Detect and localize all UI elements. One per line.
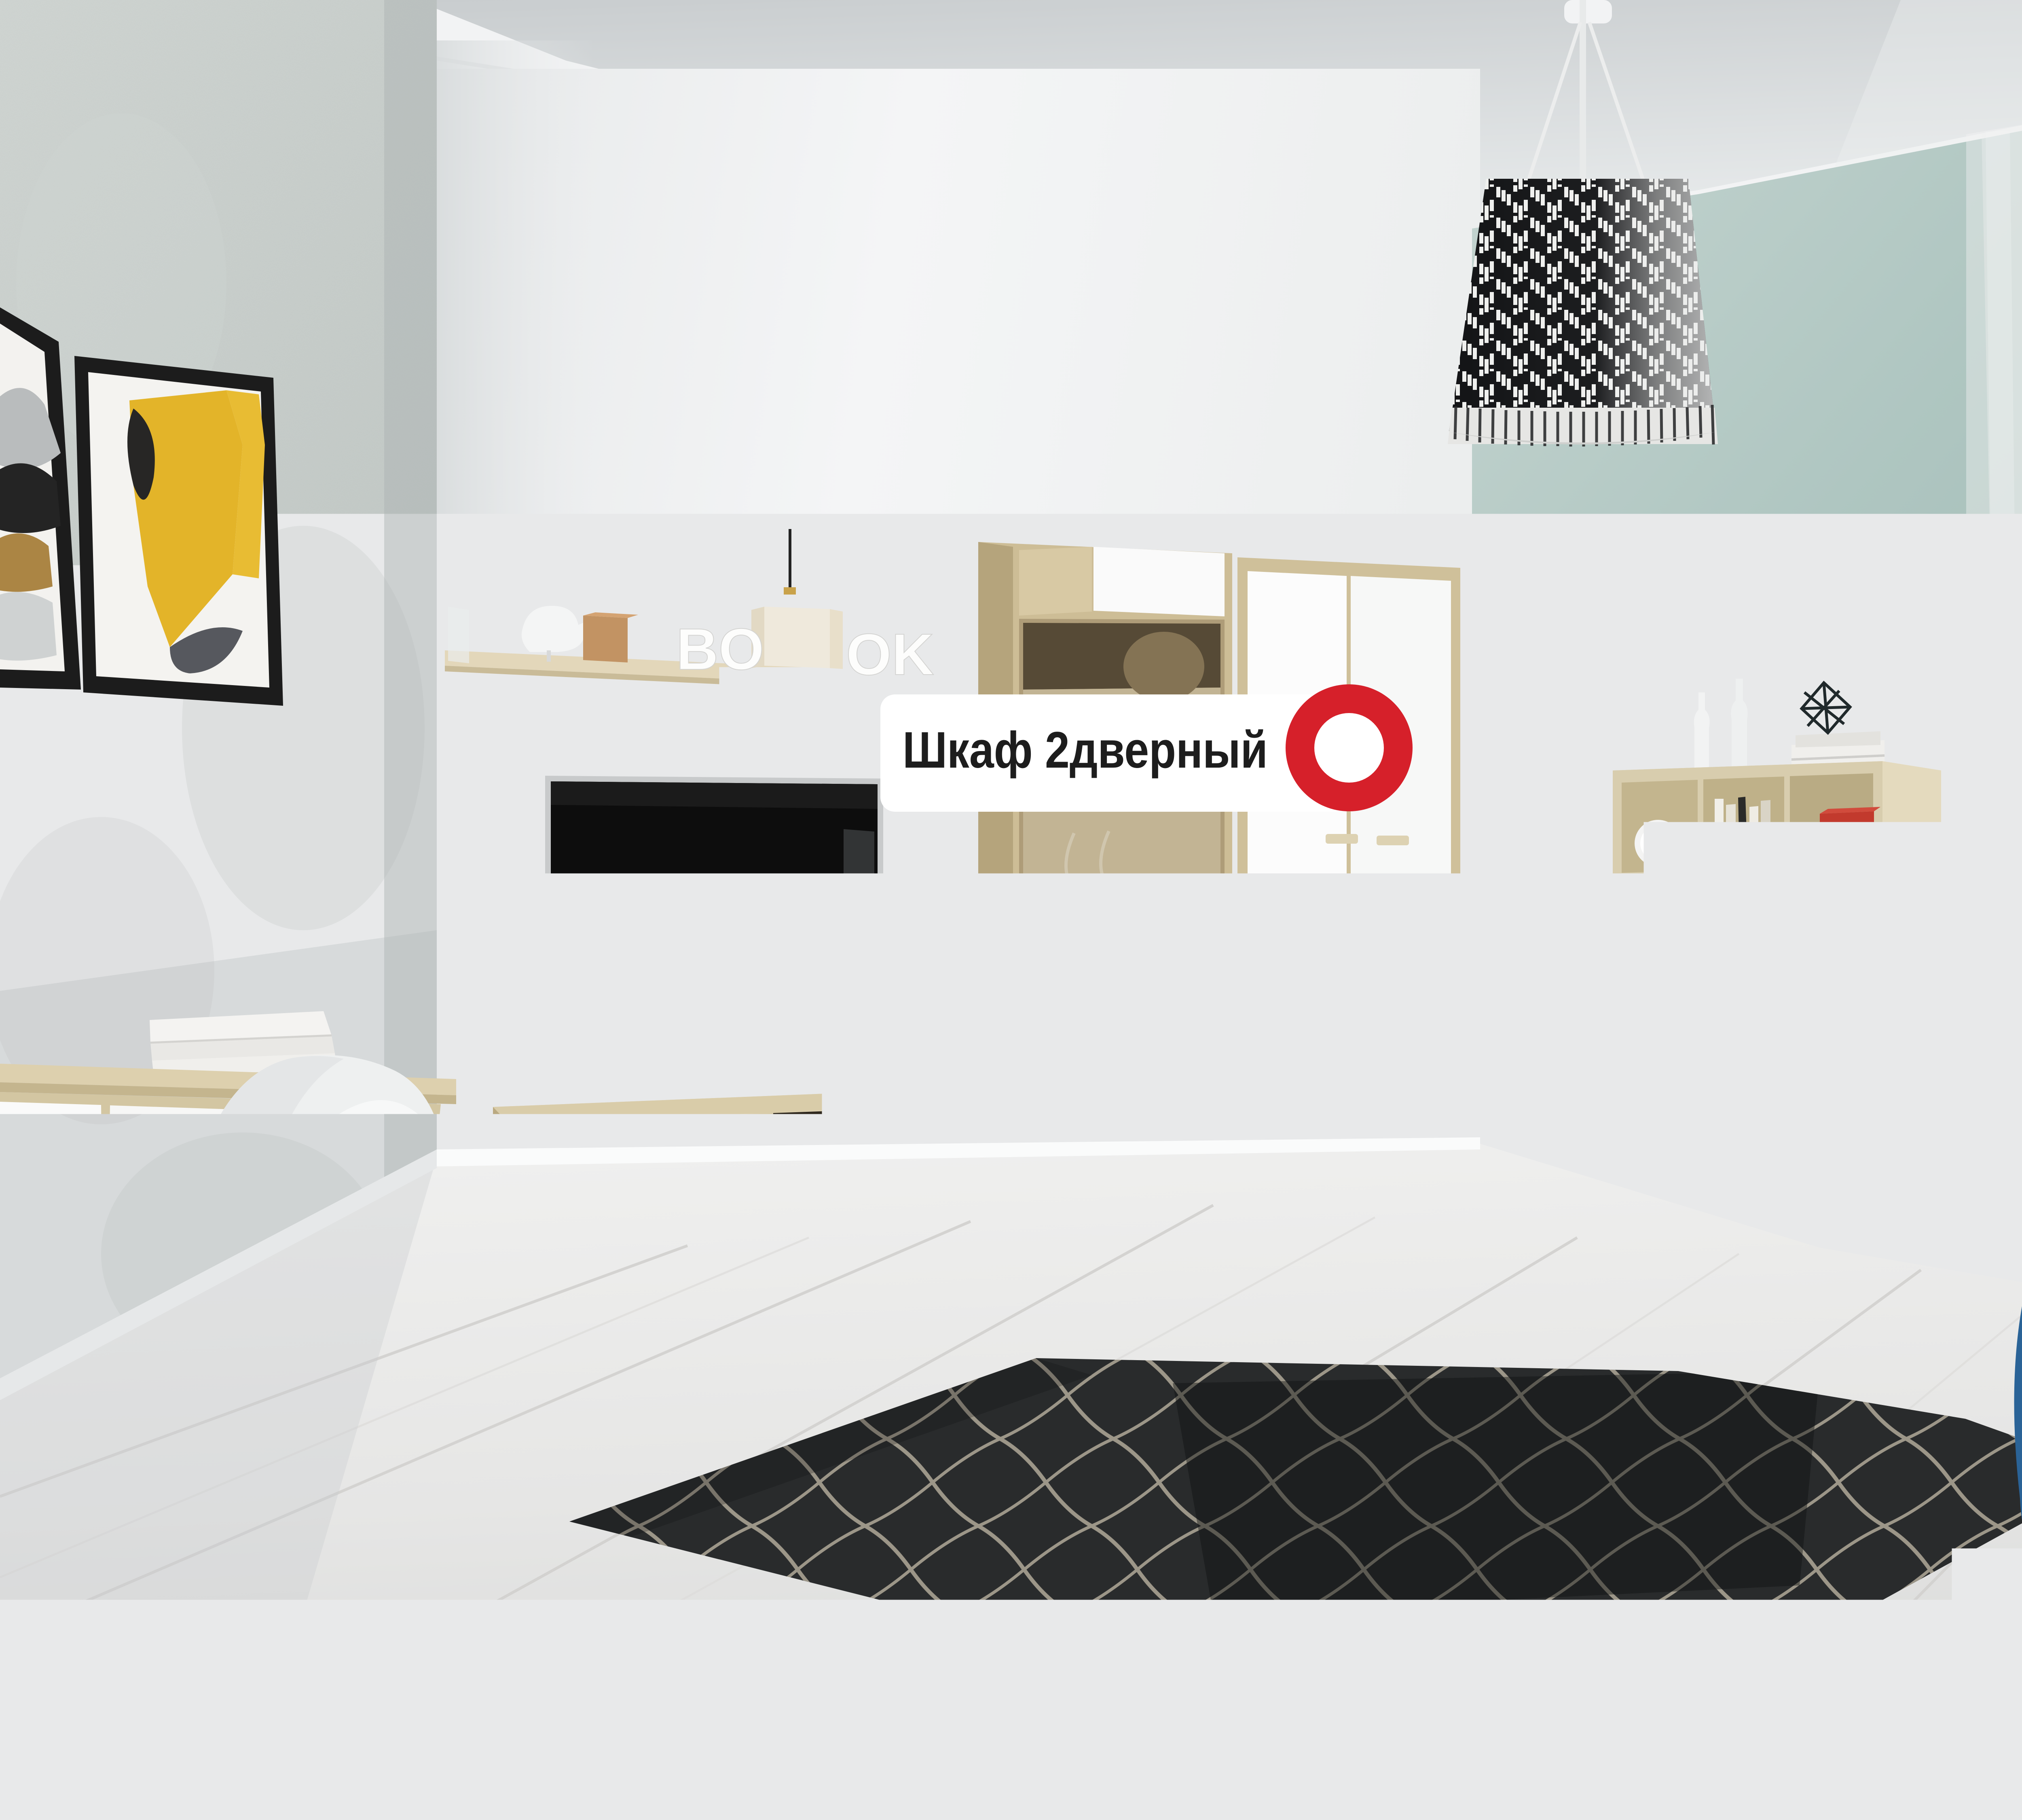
svg-text:Тумба под ТВ: Тумба под ТВ [189,1162,487,1220]
svg-text:Шкаф 2дверный: Шкаф 2дверный [903,721,1268,779]
svg-text:BO: BO [676,616,764,682]
svg-text:OK: OK [846,622,934,687]
svg-text:Стеллаж: Стеллаж [1404,958,1601,1016]
